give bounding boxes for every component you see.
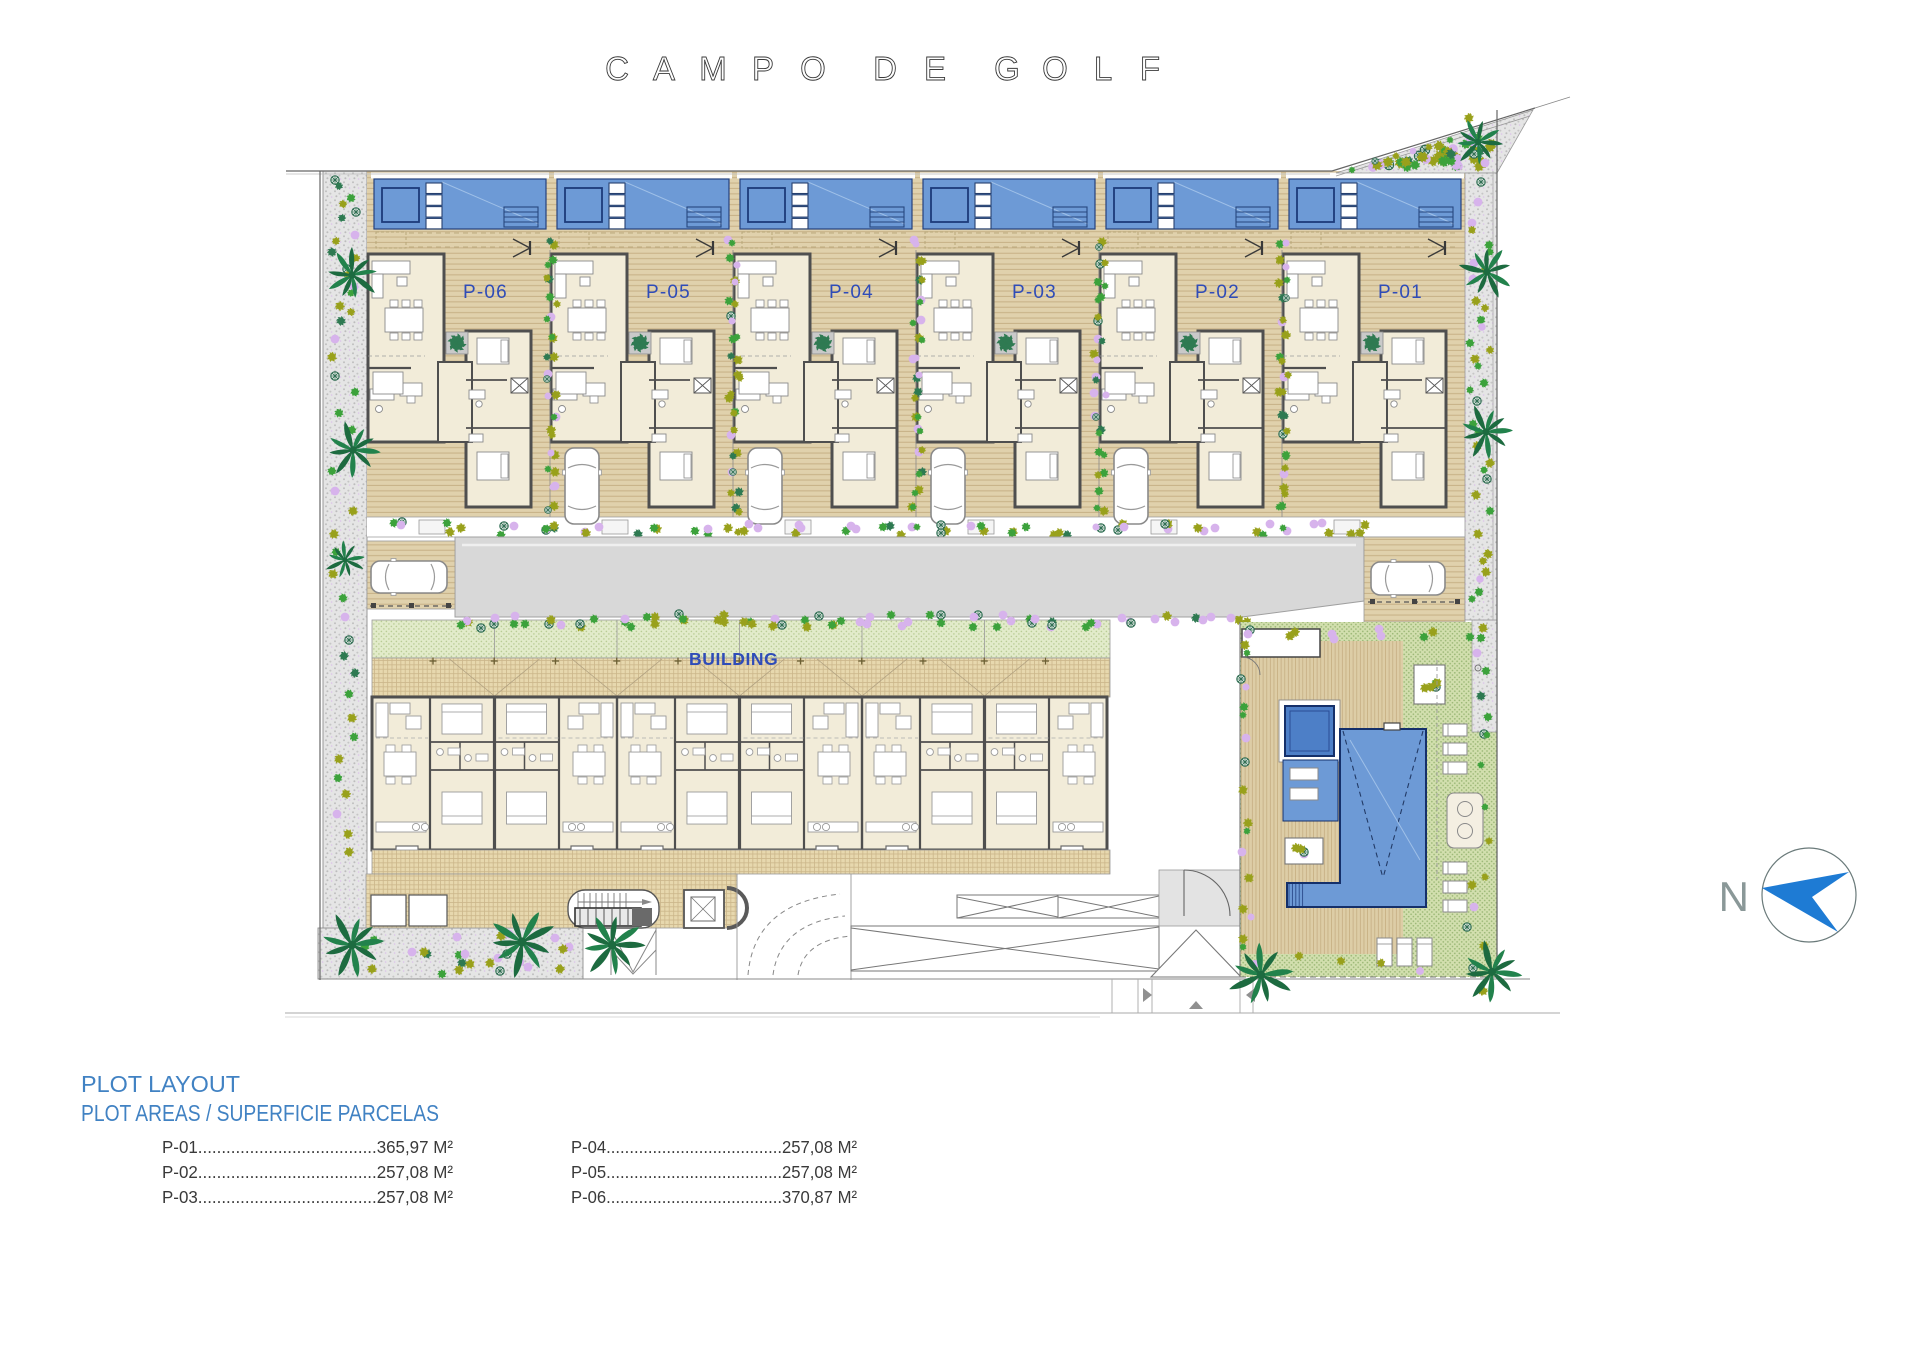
- svg-text:E: E: [924, 50, 946, 87]
- svg-text:P-06: P-06: [463, 282, 508, 303]
- svg-text:PLOT AREAS / SUPERFICIE PARCEL: PLOT AREAS / SUPERFICIE PARCELAS: [81, 1100, 439, 1126]
- svg-text:A: A: [653, 50, 675, 87]
- svg-text:P-05..........................: P-05....................................…: [571, 1162, 857, 1182]
- svg-text:P-01: P-01: [1378, 282, 1423, 303]
- svg-text:P-06..........................: P-06....................................…: [571, 1187, 857, 1207]
- svg-text:P-03: P-03: [1012, 282, 1057, 303]
- svg-text:P-01..........................: P-01....................................…: [162, 1137, 453, 1157]
- svg-text:P-03..........................: P-03....................................…: [162, 1187, 453, 1207]
- svg-text:F: F: [1140, 50, 1160, 87]
- svg-text:P-05: P-05: [646, 282, 691, 303]
- svg-text:O: O: [800, 50, 826, 87]
- svg-text:P-02..........................: P-02....................................…: [162, 1162, 453, 1182]
- svg-text:M: M: [699, 50, 727, 87]
- svg-text:P-02: P-02: [1195, 282, 1240, 303]
- svg-text:O: O: [1042, 50, 1068, 87]
- svg-text:P: P: [752, 50, 774, 87]
- svg-text:G: G: [994, 50, 1020, 87]
- svg-text:D: D: [873, 50, 897, 87]
- svg-text:P-04: P-04: [829, 282, 874, 303]
- svg-text:P-04..........................: P-04....................................…: [571, 1137, 857, 1157]
- svg-text:L: L: [1094, 50, 1112, 87]
- svg-text:N: N: [1719, 873, 1749, 920]
- svg-text:PLOT LAYOUT: PLOT LAYOUT: [81, 1071, 240, 1097]
- svg-text:C: C: [605, 50, 629, 87]
- svg-text:BUILDING: BUILDING: [689, 649, 778, 669]
